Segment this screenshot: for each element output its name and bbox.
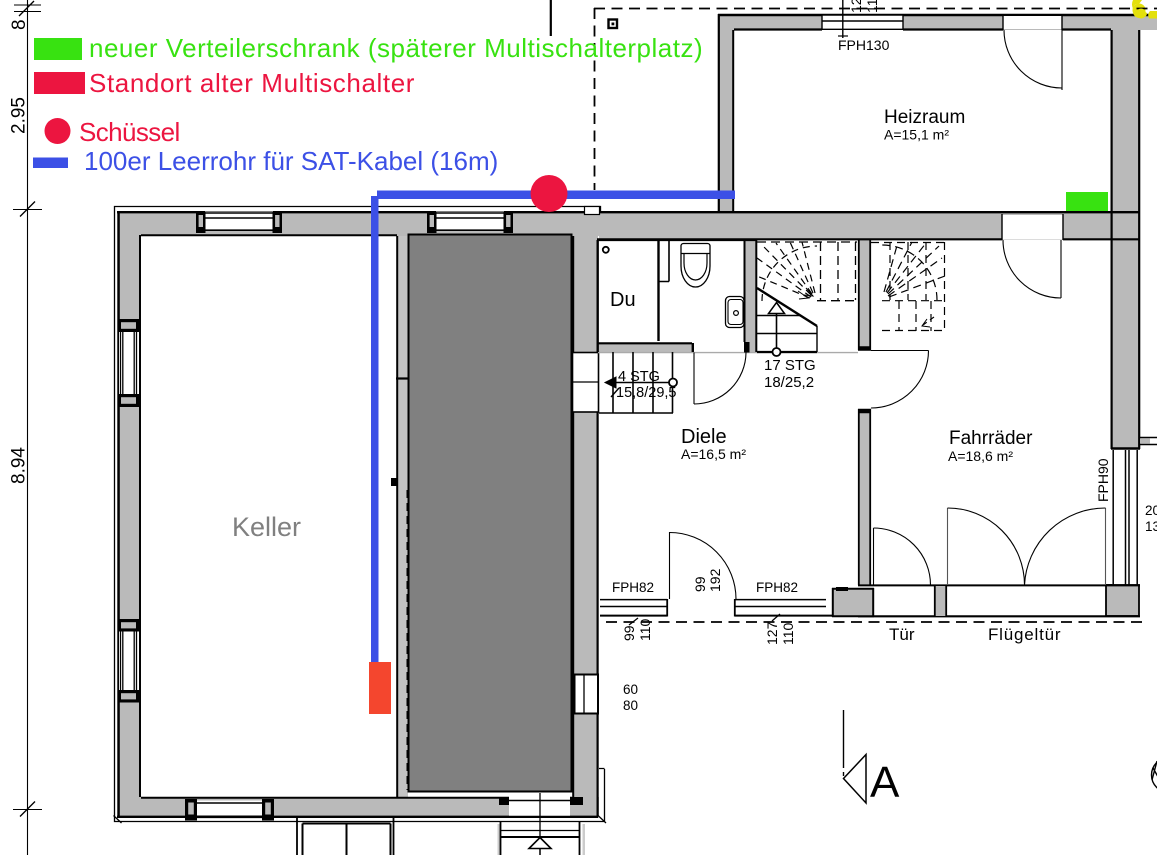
svg-text:12: 12 <box>848 0 864 13</box>
svg-text:192: 192 <box>707 568 723 592</box>
svg-text:4 STG: 4 STG <box>618 369 660 385</box>
svg-text:99: 99 <box>692 576 708 592</box>
svg-text:Heizraum: Heizraum <box>884 107 965 128</box>
svg-text:neuer Verteilerschrank (später: neuer Verteilerschrank (späterer Multisc… <box>89 33 703 63</box>
svg-text:80: 80 <box>623 698 638 713</box>
svg-text:18/25,2: 18/25,2 <box>764 374 814 391</box>
svg-text:Diele: Diele <box>681 426 727 448</box>
svg-text:FPH130: FPH130 <box>838 37 890 53</box>
svg-text:20: 20 <box>1145 503 1157 518</box>
svg-text:A=15,1 m²: A=15,1 m² <box>884 127 949 143</box>
svg-text:Flügeltür: Flügeltür <box>988 625 1061 644</box>
svg-text:A=16,5 m²: A=16,5 m² <box>681 446 746 462</box>
svg-text:11: 11 <box>864 0 880 13</box>
svg-text:110: 110 <box>637 618 653 641</box>
svg-text:A: A <box>870 758 900 807</box>
svg-text:Du: Du <box>610 289 636 311</box>
svg-text:Keller: Keller <box>232 512 301 542</box>
svg-text:99: 99 <box>621 625 637 641</box>
svg-text:8.94: 8.94 <box>9 447 30 484</box>
svg-text:127: 127 <box>764 621 780 645</box>
svg-text:8: 8 <box>9 19 30 30</box>
svg-text:17 STG: 17 STG <box>764 357 816 374</box>
svg-text:Standort alter Multischalter: Standort alter Multischalter <box>89 68 415 98</box>
svg-text:FPH82: FPH82 <box>612 580 654 595</box>
svg-text:2.95: 2.95 <box>9 97 30 134</box>
svg-text:15,8/29,5: 15,8/29,5 <box>616 385 676 401</box>
svg-text:Fahrräder: Fahrräder <box>949 428 1033 449</box>
svg-text:FPH82: FPH82 <box>756 580 798 595</box>
svg-text:100er Leerrohr für SAT-Kabel (: 100er Leerrohr für SAT-Kabel (16m) <box>84 146 498 176</box>
svg-text:A=18,6 m²: A=18,6 m² <box>948 448 1013 464</box>
svg-text:Tür: Tür <box>889 625 915 644</box>
svg-text:13: 13 <box>1145 519 1157 534</box>
svg-text:FPH90: FPH90 <box>1095 458 1111 502</box>
svg-text:110: 110 <box>780 622 796 645</box>
svg-text:Schüssel: Schüssel <box>79 117 180 147</box>
svg-text:60: 60 <box>623 682 638 697</box>
